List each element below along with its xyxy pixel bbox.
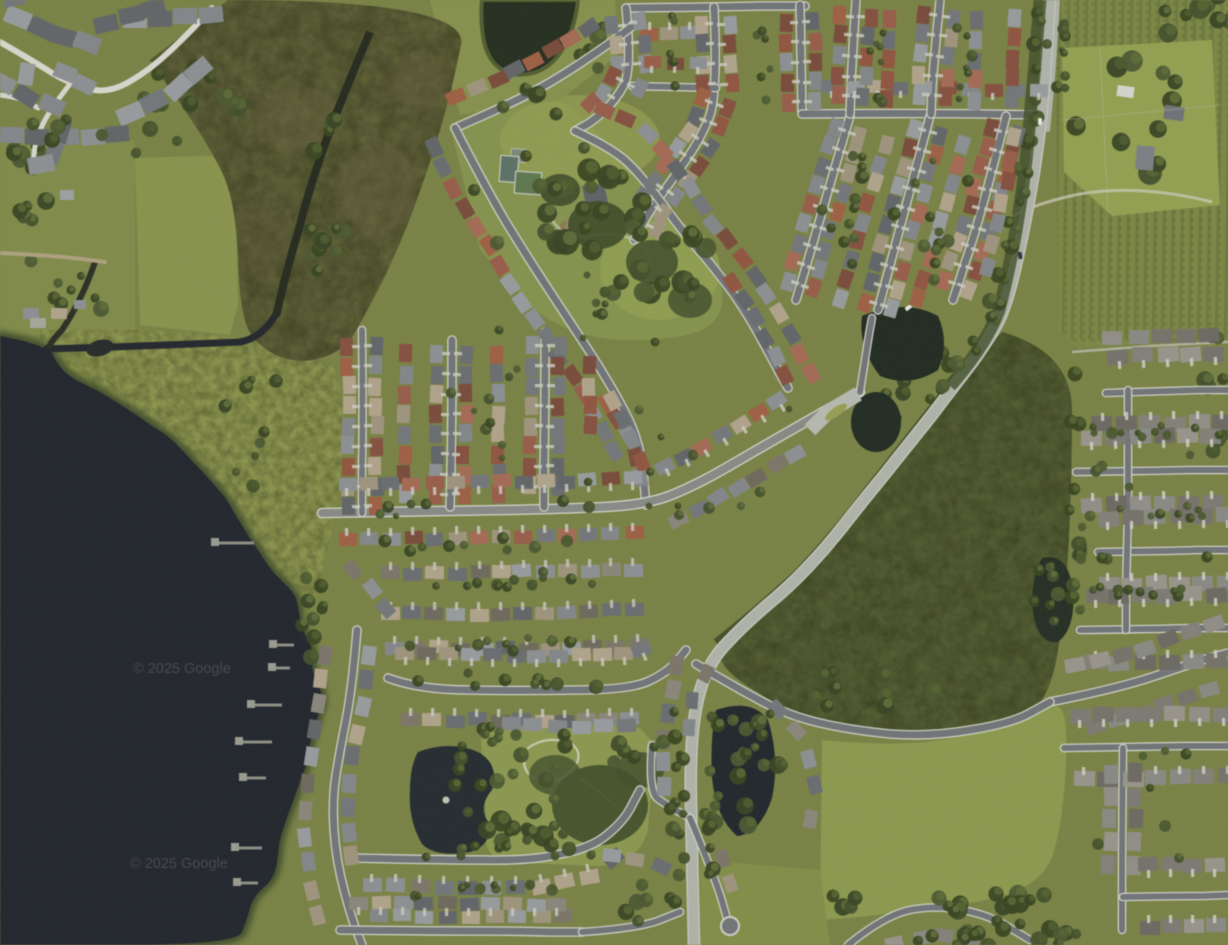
svg-text:© 2025 Google: © 2025 Google bbox=[130, 856, 228, 872]
svg-text:© 2025 Google: © 2025 Google bbox=[133, 661, 231, 677]
